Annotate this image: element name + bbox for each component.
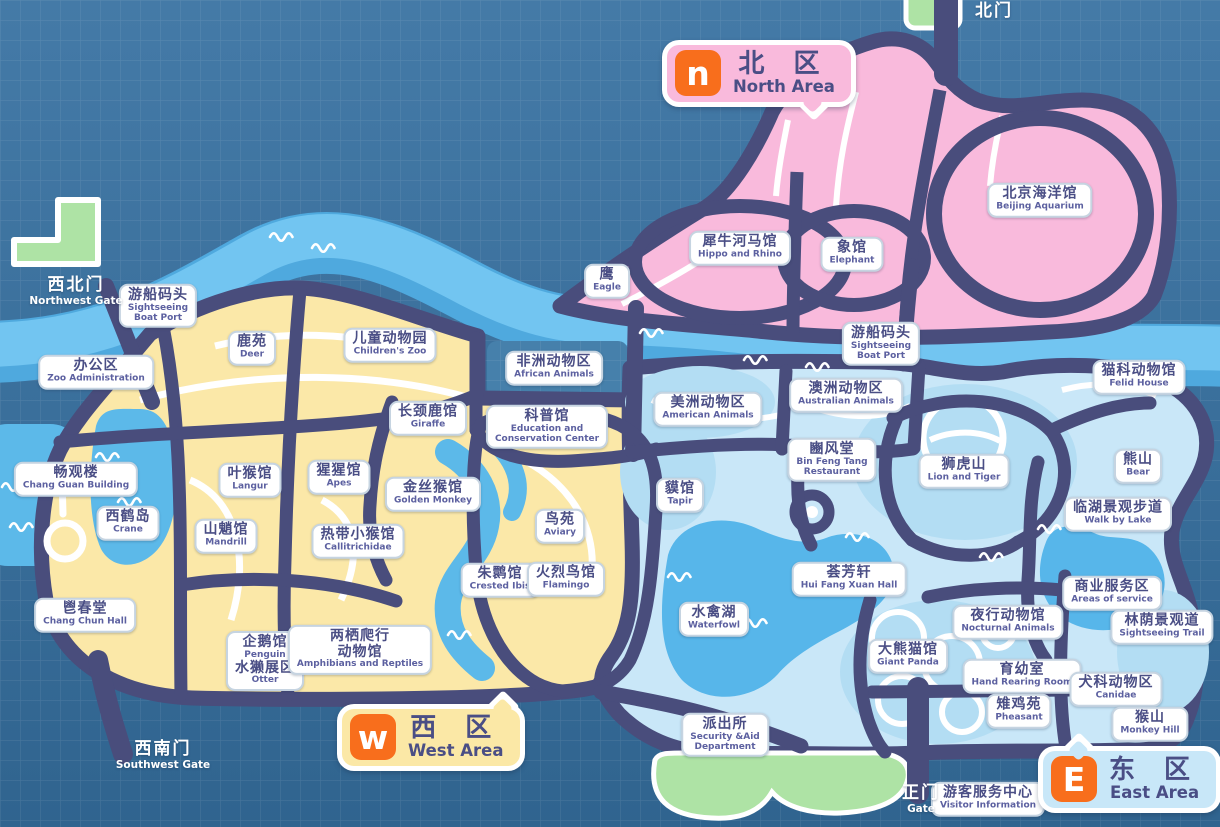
poi-sightseeing-trail: 林荫景观道Sightseeing Trail bbox=[1110, 610, 1213, 645]
poi-bin-feng-tang: 豳风堂Bin Feng Tang Restaurant bbox=[787, 438, 876, 482]
poi-name-en: Amphibians and Reptiles bbox=[297, 660, 423, 670]
poi-name-en: Tapir bbox=[665, 497, 695, 507]
poi-name-zh: 鹿苑 bbox=[237, 335, 267, 351]
poi-name-en: Sightseeing Trail bbox=[1119, 629, 1204, 639]
poi-name-en: Hui Fang Xuan Hall bbox=[801, 581, 898, 591]
east-area-title-zh: 东 区 bbox=[1109, 757, 1200, 784]
poi-name-zh: 林荫景观道 bbox=[1119, 614, 1204, 630]
poi-hippo-rhino: 犀牛河马馆Hippo and Rhino bbox=[689, 231, 791, 266]
north-area-title-en: North Area bbox=[733, 78, 835, 95]
poi-golden-monkey: 金丝猴馆Golden Monkey bbox=[385, 477, 481, 512]
poi-name-en: Hand Rearing Room bbox=[972, 678, 1073, 688]
poi-name-en: Apes bbox=[317, 479, 362, 489]
poi-name-zh: 雉鸡苑 bbox=[995, 698, 1042, 714]
east-area-badge: E 东 区 East Area bbox=[1038, 746, 1220, 813]
poi-name-zh: 荟芳轩 bbox=[801, 566, 898, 582]
poi-name-zh: 鹰 bbox=[593, 268, 621, 284]
poi-name-zh: 夜行动物馆 bbox=[961, 609, 1054, 625]
poi-waterfowl-lake: 水禽湖Waterfowl bbox=[679, 602, 749, 637]
poi-name-en: Areas of service bbox=[1071, 595, 1153, 605]
poi-name-zh: 金丝猴馆 bbox=[394, 481, 472, 497]
west-area-title-en: West Area bbox=[408, 742, 504, 759]
poi-name-zh: 西鹤岛 bbox=[106, 510, 151, 526]
poi-name-en: Bin Feng Tang Restaurant bbox=[796, 457, 867, 477]
poi-name-zh: 猴山 bbox=[1120, 711, 1179, 727]
poi-visitor-information: 游客服务中心Visitor Information bbox=[931, 782, 1045, 817]
poi-name-zh: 长颈鹿馆 bbox=[398, 405, 458, 421]
poi-name-en: Felid House bbox=[1102, 379, 1177, 389]
poi-name-zh: 儿童动物园 bbox=[353, 332, 428, 348]
poi-name-en: Callitrichidae bbox=[321, 543, 396, 553]
poi-monkey-hill: 猴山Monkey Hill bbox=[1111, 707, 1188, 742]
poi-african-animals: 非洲动物区African Animals bbox=[505, 351, 603, 386]
gate-name-zh: 西南门 bbox=[116, 740, 210, 759]
poi-beijing-aquarium: 北京海洋馆Beijing Aquarium bbox=[987, 183, 1092, 218]
poi-american-animals: 美洲动物区American Animals bbox=[653, 392, 762, 427]
poi-name-zh: 豳风堂 bbox=[796, 442, 867, 458]
west-area-badge: w 西 区 West Area bbox=[337, 704, 525, 771]
poi-name-en: Eagle bbox=[593, 283, 621, 293]
poi-name-zh: 水獭展区 bbox=[235, 661, 295, 677]
poi-name-zh: 游船码头 bbox=[128, 288, 188, 304]
poi-flamingo: 火烈鸟馆Flamingo bbox=[527, 562, 605, 597]
poi-name-zh: 犬科动物区 bbox=[1079, 676, 1154, 692]
poi-name-zh: 派出所 bbox=[690, 717, 760, 733]
poi-name-zh: 澳洲动物区 bbox=[798, 382, 894, 398]
poi-australian-animals: 澳洲动物区Australian Animals bbox=[789, 378, 903, 413]
poi-name-zh: 科普馆 bbox=[495, 409, 599, 425]
north-area-title-zh: 北 区 bbox=[733, 51, 835, 78]
poi-name-zh: 朱鹮馆 bbox=[470, 567, 531, 583]
poi-bear: 熊山Bear bbox=[1114, 449, 1162, 484]
poi-name-en: Canidae bbox=[1079, 691, 1154, 701]
poi-name-en: Otter bbox=[235, 676, 295, 686]
poi-name-en: Crested Ibis bbox=[470, 582, 531, 592]
poi-eagle: 鹰Eagle bbox=[584, 264, 630, 299]
poi-name-en: Education and Conservation Center bbox=[495, 424, 599, 444]
poi-name-en: Australian Animals bbox=[798, 397, 894, 407]
poi-name-en: Security &Aid Department bbox=[690, 732, 760, 752]
zoo-map: 游船码头Sightseeing Boat Port办公区Zoo Administ… bbox=[0, 0, 1220, 827]
poi-name-en: Giant Panda bbox=[877, 658, 939, 668]
east-area-icon: E bbox=[1051, 756, 1097, 802]
poi-elephant: 象馆Elephant bbox=[821, 237, 884, 272]
poi-name-zh: 狮虎山 bbox=[928, 458, 1001, 474]
poi-pheasant: 雉鸡苑Pheasant bbox=[986, 694, 1051, 729]
poi-name-zh: 办公区 bbox=[47, 359, 145, 375]
poi-name-zh: 两栖爬行 动物馆 bbox=[297, 629, 423, 660]
gate-name-en: Northwest Gate bbox=[29, 295, 122, 307]
poi-chang-chun-hall: 鬯春堂Chang Chun Hall bbox=[34, 598, 136, 633]
poi-name-en: Walk by Lake bbox=[1073, 516, 1163, 526]
poi-name-en: Visitor Information bbox=[940, 801, 1036, 811]
poi-name-zh: 水禽湖 bbox=[688, 606, 740, 622]
west-area-title-zh: 西 区 bbox=[408, 715, 504, 742]
poi-crane: 西鹤岛Crane bbox=[97, 506, 160, 541]
poi-name-en: Waterfowl bbox=[688, 621, 740, 631]
poi-name-en: Children's Zoo bbox=[353, 347, 428, 357]
north-area-icon: n bbox=[675, 50, 721, 96]
north-area-badge: n 北 区 North Area bbox=[662, 40, 856, 107]
gate-label-main: 正门Gate bbox=[902, 784, 940, 815]
poi-name-en: Deer bbox=[237, 350, 267, 360]
poi-name-en: Monkey Hill bbox=[1120, 726, 1179, 736]
poi-name-en: Langur bbox=[228, 482, 273, 492]
poi-name-en: Sightseeing Boat Port bbox=[128, 303, 188, 323]
gate-name-en: Southwest Gate bbox=[116, 759, 210, 771]
poi-name-en: Giraffe bbox=[398, 420, 458, 430]
gate-label-southwest: 西南门Southwest Gate bbox=[116, 740, 210, 771]
poi-chang-guan-building: 畅观楼Chang Guan Building bbox=[14, 462, 138, 497]
poi-name-en: Hippo and Rhino bbox=[698, 250, 782, 260]
poi-name-en: Lion and Tiger bbox=[928, 473, 1001, 483]
poi-name-en: Pheasant bbox=[995, 713, 1042, 723]
poi-hui-fang-xuan: 荟芳轩Hui Fang Xuan Hall bbox=[792, 562, 907, 597]
poi-name-zh: 火烈鸟馆 bbox=[536, 566, 596, 582]
poi-boat-port-west: 游船码头Sightseeing Boat Port bbox=[119, 284, 197, 328]
poi-name-zh: 鬯春堂 bbox=[43, 602, 127, 618]
poi-giant-panda: 大熊猫馆Giant Panda bbox=[868, 639, 948, 674]
poi-name-zh: 山魈馆 bbox=[204, 523, 249, 539]
poi-lion-tiger: 狮虎山Lion and Tiger bbox=[919, 454, 1010, 489]
poi-walk-by-lake: 临湖景观步道Walk by Lake bbox=[1064, 497, 1172, 532]
poi-canidae: 犬科动物区Canidae bbox=[1070, 672, 1163, 707]
poi-name-en: Golden Monkey bbox=[394, 496, 472, 506]
poi-areas-of-service: 商业服务区Areas of service bbox=[1062, 576, 1162, 611]
poi-police-station: 派出所Security &Aid Department bbox=[681, 713, 769, 757]
poi-name-zh: 畅观楼 bbox=[23, 466, 129, 482]
poi-langur: 叶猴馆Langur bbox=[219, 463, 282, 498]
poi-name-en: Mandrill bbox=[204, 538, 249, 548]
poi-name-en: Chang Guan Building bbox=[23, 481, 129, 491]
poi-zoo-administration: 办公区Zoo Administration bbox=[38, 355, 154, 390]
poi-name-zh: 貘馆 bbox=[665, 482, 695, 498]
poi-name-en: Chang Chun Hall bbox=[43, 617, 127, 627]
poi-name-en: African Animals bbox=[514, 370, 594, 380]
poi-name-en: Zoo Administration bbox=[47, 374, 145, 384]
west-area-icon: w bbox=[350, 714, 396, 760]
poi-name-en: Flamingo bbox=[536, 581, 596, 591]
poi-education-center: 科普馆Education and Conservation Center bbox=[486, 405, 608, 449]
poi-name-zh: 猫科动物馆 bbox=[1102, 364, 1177, 380]
poi-name-en: Nocturnal Animals bbox=[961, 624, 1054, 634]
east-area-title-en: East Area bbox=[1109, 784, 1200, 801]
poi-name-zh: 热带小猴馆 bbox=[321, 528, 396, 544]
poi-name-zh: 鸟苑 bbox=[544, 513, 576, 529]
poi-name-zh: 非洲动物区 bbox=[514, 355, 594, 371]
poi-name-zh: 游船码头 bbox=[851, 326, 911, 342]
poi-name-zh: 商业服务区 bbox=[1071, 580, 1153, 596]
poi-giraffe: 长颈鹿馆Giraffe bbox=[389, 401, 467, 436]
poi-callitrichidae: 热带小猴馆Callitrichidae bbox=[312, 524, 405, 559]
poi-tapir: 貘馆Tapir bbox=[656, 478, 704, 513]
poi-name-zh: 育幼室 bbox=[972, 663, 1073, 679]
poi-nocturnal-animals: 夜行动物馆Nocturnal Animals bbox=[952, 605, 1063, 640]
poi-name-zh: 企鹅馆 bbox=[235, 635, 295, 651]
gate-name-zh: 西北门 bbox=[29, 276, 122, 295]
poi-felid-house: 猫科动物馆Felid House bbox=[1093, 360, 1186, 395]
poi-name-zh: 猩猩馆 bbox=[317, 464, 362, 480]
poi-amphibians-reptiles: 两栖爬行 动物馆Amphibians and Reptiles bbox=[288, 625, 432, 675]
poi-aviary: 鸟苑Aviary bbox=[535, 509, 585, 544]
gate-name-zh: 正门 bbox=[902, 784, 940, 803]
poi-name-zh: 熊山 bbox=[1123, 453, 1153, 469]
poi-name-zh: 象馆 bbox=[830, 241, 875, 257]
poi-name-zh: 美洲动物区 bbox=[662, 396, 753, 412]
poi-hand-rearing-room: 育幼室Hand Rearing Room bbox=[963, 659, 1082, 694]
poi-mandrill: 山魈馆Mandrill bbox=[195, 519, 258, 554]
poi-name-zh: 游客服务中心 bbox=[940, 786, 1036, 802]
poi-name-en: Crane bbox=[106, 525, 151, 535]
poi-boat-port-north: 游船码头Sightseeing Boat Port bbox=[842, 322, 920, 366]
gate-name-en: Gate bbox=[902, 803, 940, 815]
poi-deer: 鹿苑Deer bbox=[228, 331, 276, 366]
gate-name-zh: 北门 bbox=[975, 2, 1013, 21]
poi-name-en: American Animals bbox=[662, 411, 753, 421]
poi-childrens-zoo: 儿童动物园Children's Zoo bbox=[344, 328, 437, 363]
gate-label-northwest: 西北门Northwest Gate bbox=[29, 276, 122, 307]
gate-label-north: 北门 bbox=[975, 2, 1013, 21]
poi-name-en: Beijing Aquarium bbox=[996, 202, 1083, 212]
poi-name-en: Elephant bbox=[830, 256, 875, 266]
poi-name-en: Sightseeing Boat Port bbox=[851, 341, 911, 361]
poi-apes: 猩猩馆Apes bbox=[308, 460, 371, 495]
poi-name-en: Aviary bbox=[544, 528, 576, 538]
poi-name-zh: 犀牛河马馆 bbox=[698, 235, 782, 251]
poi-name-zh: 临湖景观步道 bbox=[1073, 501, 1163, 517]
poi-name-zh: 叶猴馆 bbox=[228, 467, 273, 483]
poi-name-zh: 北京海洋馆 bbox=[996, 187, 1083, 203]
poi-name-zh: 大熊猫馆 bbox=[877, 643, 939, 659]
poi-name-en: Bear bbox=[1123, 468, 1153, 478]
